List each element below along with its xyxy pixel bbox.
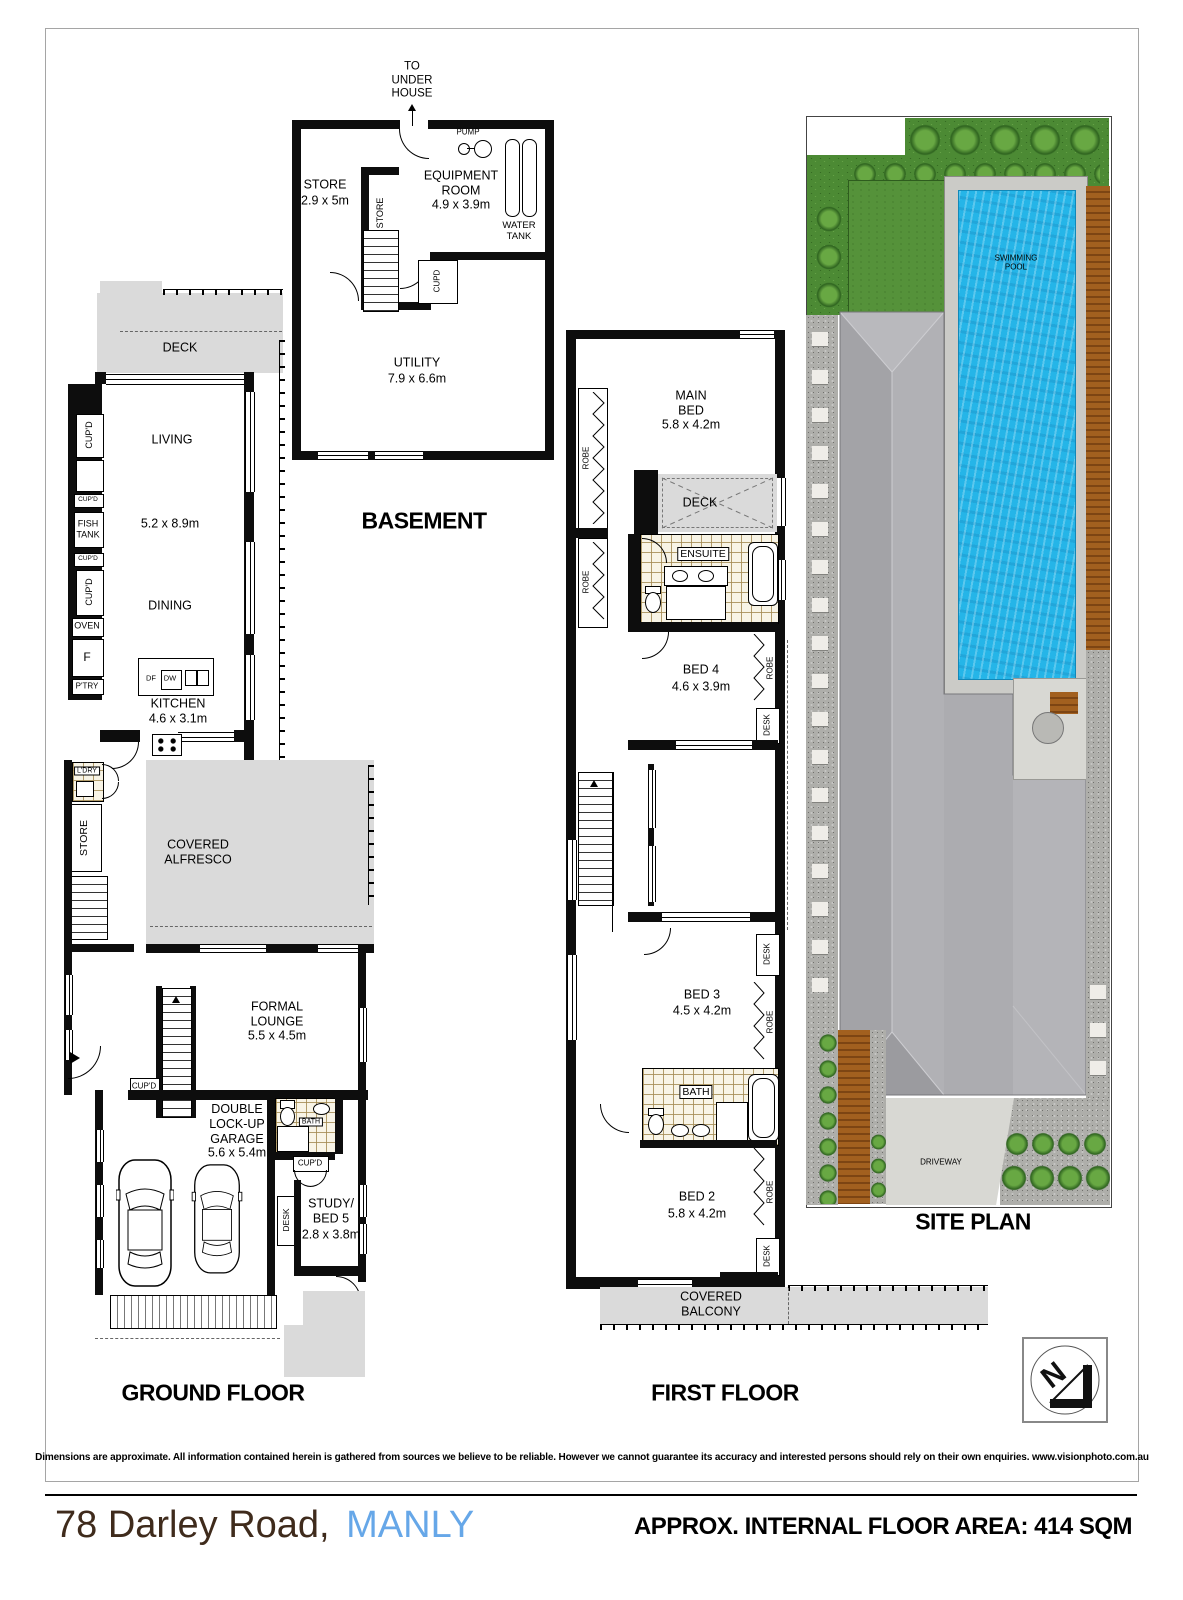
basin-fixture (692, 1124, 710, 1137)
dims-label-lounge: 5.5 x 4.5m (248, 1029, 306, 1044)
arrow-up-icon (590, 776, 598, 787)
dims-label-bed4: 4.6 x 3.9m (672, 680, 730, 695)
balcony-divider (788, 1288, 790, 1324)
disclaimer-text: Dimensions are approximate. All informat… (35, 1452, 1149, 1463)
dims-label-study: 2.8 x 3.8m (302, 1228, 360, 1243)
dw-label: DW (164, 675, 177, 684)
window (65, 975, 73, 1015)
first-floor-title: FIRST FLOOR (651, 1379, 799, 1406)
cupd-label: CUP'D (298, 1158, 322, 1167)
wall (720, 1272, 778, 1288)
robe-zigzag (753, 634, 765, 704)
wall (292, 120, 301, 460)
wall (64, 944, 134, 952)
pump-label: PUMP (456, 127, 479, 136)
wall (428, 120, 554, 129)
fridge-label: F (83, 650, 90, 664)
room-label-utility: UTILITY (394, 356, 441, 371)
basin-fixture (313, 1103, 330, 1115)
room-label-equipment: EQUIPMENT ROOM (411, 168, 511, 198)
dims-label-living-dining: 5.2 x 8.9m (141, 517, 199, 532)
stairs (363, 230, 399, 312)
room-label-garage: DOUBLE LOCK-UP GARAGE (195, 1102, 279, 1146)
water-tank-fixture (522, 139, 537, 217)
robe-zigzag (592, 392, 605, 524)
window (567, 840, 577, 900)
car (188, 1158, 246, 1278)
room-label-bed4: BED 4 (683, 663, 719, 678)
footer-divider (45, 1494, 1137, 1496)
porch (284, 1325, 365, 1377)
window (676, 740, 752, 750)
annotation-to-under-house: TO UNDER HOUSE (383, 61, 441, 102)
sink (197, 670, 209, 686)
driveway-label: DRIVEWAY (920, 1157, 962, 1166)
toilet-fixture (648, 1114, 664, 1135)
cupd-label: CUP'D (78, 496, 98, 504)
window (375, 451, 423, 460)
arrow-line (412, 110, 413, 126)
window (776, 478, 786, 526)
window (648, 770, 656, 828)
robe-label: ROBE (582, 571, 591, 594)
sink (185, 670, 197, 686)
cupd-label: CUPD (433, 270, 442, 293)
water-tank-label: WATER TANK (496, 220, 542, 242)
pump-pipe (467, 148, 475, 149)
deck-area (97, 293, 283, 373)
window (359, 1185, 367, 1217)
pump-fixture (474, 140, 492, 158)
basin-fixture (672, 570, 688, 582)
boundary-ticks (368, 765, 374, 905)
room-label-bed2: BED 2 (679, 1190, 715, 1205)
robe-label: ROBE (766, 1011, 775, 1034)
wall (100, 730, 140, 742)
address-suburb: MANLY (346, 1504, 474, 1546)
stairs (68, 876, 108, 940)
dims-label-equipment: 4.9 x 3.9m (432, 198, 490, 213)
robe-zigzag (753, 1148, 765, 1234)
cupboard (76, 460, 104, 492)
cooktop (152, 734, 182, 756)
shower-fixture (716, 1102, 748, 1144)
wall (628, 534, 640, 632)
robe-label: ROBE (766, 657, 775, 680)
bush-row (1004, 1128, 1108, 1160)
north-arrow-icon: N (1022, 1337, 1108, 1423)
cupd-label: CUP'D (84, 421, 94, 448)
shower-fixture (277, 1126, 309, 1152)
deck-label: DECK (683, 496, 718, 511)
window (245, 542, 255, 634)
room-label-study: STUDY/ BED 5 (305, 1196, 357, 1226)
wall (234, 730, 254, 742)
tree-row (905, 120, 1109, 160)
boundary-ticks (600, 1324, 988, 1330)
window (359, 1224, 367, 1254)
wall (566, 330, 576, 1287)
cupd-label: CUP'D (84, 578, 94, 605)
boundary-ticks (788, 1285, 988, 1291)
window (662, 912, 750, 922)
bush-column (818, 1030, 838, 1204)
wall (634, 470, 658, 534)
basin-fixture (698, 570, 714, 582)
boundary-ticks (163, 289, 283, 295)
window (648, 846, 656, 902)
wall (430, 252, 554, 260)
desk-label: DESK (281, 1208, 291, 1231)
wall (628, 622, 778, 632)
pump-fixture (458, 143, 470, 155)
balcony-area (600, 1287, 988, 1325)
fish-tank-label: FISH TANK (73, 518, 103, 539)
robe-label: ROBE (582, 447, 591, 470)
address-street: 78 Darley Road, (55, 1504, 330, 1546)
ground-floor-title: GROUND FLOOR (121, 1379, 304, 1406)
basement-title: BASEMENT (361, 507, 486, 534)
desk-label: DESK (763, 714, 772, 736)
robe-zigzag (592, 542, 605, 622)
car (116, 1152, 174, 1292)
wood-deck (1050, 692, 1078, 714)
room-label-alfresco: COVERED ALFRESCO (156, 837, 240, 867)
bush-column (871, 1130, 886, 1200)
entry-arrow-icon (70, 1052, 86, 1064)
floorplan-page: { "footer": { "address_street": "78 Darl… (0, 0, 1183, 1600)
window (318, 944, 358, 953)
stairs (578, 772, 614, 906)
window (567, 955, 577, 1040)
room-label-store: STORE (304, 178, 347, 193)
ensuite-label: ENSUITE (677, 547, 729, 561)
bush-row (1000, 1160, 1110, 1196)
wall (294, 1180, 301, 1276)
dims-label-utility: 7.9 x 6.6m (388, 372, 446, 387)
window (740, 330, 774, 339)
window (245, 655, 255, 720)
footer-address: 78 Darley Road, MANLY (55, 1504, 474, 1547)
pantry-label: P'TRY (76, 681, 99, 690)
dims-label-bed2: 5.8 x 4.2m (668, 1207, 726, 1222)
wall (95, 372, 106, 384)
feature-tree (1032, 712, 1064, 744)
wall (361, 167, 399, 175)
oven-label: OVEN (74, 621, 100, 632)
wall (640, 1140, 777, 1148)
stair-store-label: STORE (375, 198, 385, 229)
void-dashed-line (787, 640, 789, 930)
porch (303, 1291, 365, 1325)
bath-label: BATH (299, 1118, 323, 1127)
dims-label-store: 2.9 x 5m (301, 194, 349, 209)
window (318, 451, 368, 460)
dims-label-bed3: 4.5 x 4.2m (673, 1004, 731, 1019)
toilet-fixture (280, 1107, 295, 1126)
deck-dashed-line (120, 331, 282, 333)
robe-zigzag (753, 982, 765, 1064)
window (245, 392, 255, 492)
bathtub-fixture (752, 546, 774, 602)
window (106, 374, 244, 385)
desk-label: DESK (763, 943, 772, 965)
wall (335, 1098, 343, 1154)
basin-fixture (671, 1124, 689, 1137)
window (359, 1008, 367, 1062)
window (96, 1130, 104, 1162)
pool-label: SWIMMING POOL (989, 254, 1043, 273)
spa-bath-fixture (752, 1078, 775, 1138)
window (96, 1185, 104, 1217)
bath-label: BATH (679, 1085, 712, 1099)
room-label-dining: DINING (148, 599, 192, 614)
north-letter: N (1035, 1356, 1072, 1395)
room-label-main-bed: MAIN BED (669, 388, 713, 418)
room-label-balcony: COVERED BALCONY (669, 1289, 753, 1319)
df-label: DF (146, 675, 156, 684)
stepping-stones (812, 332, 828, 992)
garage-door (110, 1295, 277, 1329)
room-label-bed3: BED 3 (684, 988, 720, 1003)
footer-floor-area: APPROX. INTERNAL FLOOR AREA: 414 SQM (634, 1513, 1132, 1541)
deck-label: DECK (163, 341, 198, 356)
balustrade (612, 772, 613, 932)
room-label-lounge: FORMAL LOUNGE (241, 999, 313, 1029)
wall (545, 120, 554, 460)
window (200, 944, 266, 953)
arrow-up-icon (172, 992, 180, 1003)
wall (296, 1266, 366, 1276)
cupd-label: CUP'D (78, 555, 98, 563)
window (178, 732, 234, 742)
laundry-tub (76, 781, 94, 797)
room-label-kitchen: KITCHEN (151, 697, 206, 712)
window (96, 1240, 104, 1268)
driveway-area (886, 1098, 1014, 1205)
arrow-up-icon (408, 100, 416, 111)
toilet-fixture (645, 592, 661, 613)
dims-label-kitchen: 4.6 x 3.1m (149, 712, 207, 727)
wall (292, 120, 400, 129)
shower-fixture (666, 586, 726, 620)
store-label: STORE (78, 820, 90, 856)
bush-column (816, 200, 842, 312)
wood-deck (838, 1030, 870, 1204)
room-label-living: LIVING (152, 433, 193, 448)
wall (64, 760, 72, 950)
dims-label-main-bed: 5.8 x 4.2m (662, 418, 720, 433)
robe-label: ROBE (766, 1181, 775, 1204)
ldry-label: L'DRY (74, 767, 100, 776)
deck-step (100, 281, 162, 293)
wall (576, 528, 608, 538)
site-plan-title: SITE PLAN (915, 1208, 1031, 1235)
desk-label: DESK (763, 1245, 772, 1267)
crossover-dashed-line (95, 1338, 280, 1340)
alfresco-dashed-line (150, 926, 372, 928)
